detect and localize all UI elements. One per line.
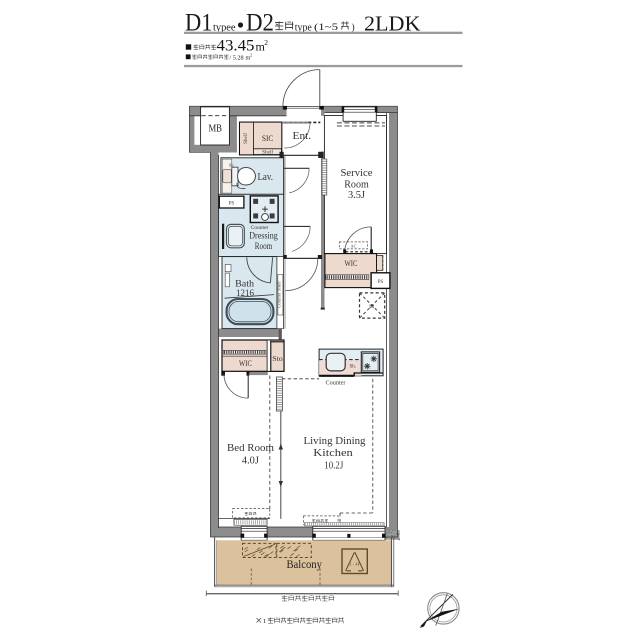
svg-text:2 - 4F: 2 - 4F	[349, 561, 360, 566]
svg-text:Ent.: Ent.	[293, 131, 312, 142]
svg-text:Shelf: Shelf	[262, 148, 273, 155]
svg-text:AC: AC	[351, 243, 357, 248]
svg-text:4.0J: 4.0J	[242, 456, 259, 467]
svg-text:10.2J: 10.2J	[324, 461, 343, 472]
svg-text:): )	[352, 22, 355, 33]
svg-text:Lav.: Lav.	[257, 172, 273, 183]
svg-text:2: 2	[250, 52, 252, 57]
svg-text:1216: 1216	[236, 289, 254, 299]
svg-text:Counter: Counter	[326, 380, 346, 387]
svg-text:2: 2	[264, 38, 268, 47]
svg-text:PS: PS	[229, 201, 235, 206]
svg-text:Counter: Counter	[251, 225, 269, 231]
svg-text:WIC: WIC	[239, 359, 252, 368]
svg-text:Living Dining: Living Dining	[304, 435, 366, 447]
svg-text:Sh.: Sh.	[350, 364, 357, 369]
svg-text:Service: Service	[341, 168, 373, 179]
svg-text:Bath: Bath	[235, 280, 254, 290]
svg-text:PS: PS	[378, 280, 384, 285]
svg-text:Sh.: Sh.	[229, 163, 234, 168]
svg-text:1: 1	[263, 618, 266, 625]
svg-text:Room: Room	[255, 242, 273, 252]
svg-text:/ 5.28: / 5.28	[230, 54, 244, 61]
svg-text:3.5J: 3.5J	[348, 190, 365, 201]
svg-text:Bed Room: Bed Room	[227, 442, 274, 454]
svg-text:Sto: Sto	[272, 355, 283, 363]
svg-text:MB: MB	[208, 124, 222, 135]
svg-text:43.45: 43.45	[217, 38, 255, 55]
svg-text:Kitchen: Kitchen	[313, 447, 353, 459]
svg-text:Counter Shelf: Counter Shelf	[278, 281, 283, 308]
svg-text:(1~5: (1~5	[314, 22, 338, 33]
svg-text:SIC: SIC	[262, 133, 274, 143]
svg-text:Dressing: Dressing	[249, 231, 278, 241]
svg-text:Shelf: Shelf	[242, 133, 249, 144]
svg-text:Balcony: Balcony	[286, 559, 322, 571]
svg-text:WIC: WIC	[345, 259, 358, 268]
